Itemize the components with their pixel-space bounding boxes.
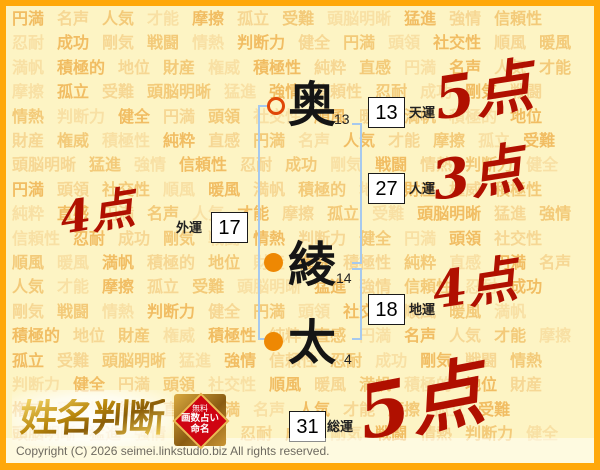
- stroke-count-1: 13: [334, 112, 350, 126]
- jinun-score: 3点: [429, 143, 527, 205]
- jinun-label: 人運: [409, 182, 435, 195]
- gaiun-label: 外運: [176, 221, 202, 234]
- souun-label: 総運: [327, 420, 353, 433]
- site-logo[interactable]: 姓名判断: [12, 390, 172, 446]
- name-char-1: 奥: [288, 82, 336, 130]
- chiun-label: 地運: [409, 303, 435, 316]
- jinun-value-box: 27: [368, 173, 405, 204]
- chiun-value-box: 18: [368, 294, 405, 325]
- badge-line-2: 画数占い: [181, 414, 219, 425]
- chiun-bracket: [352, 268, 362, 340]
- char-marker-dot: [264, 253, 283, 272]
- stroke-count-3: 4: [344, 352, 352, 366]
- site-logo-text: 姓名判断: [19, 399, 166, 437]
- char-marker-ring: [267, 97, 285, 115]
- seimei-handan-result-page: 円満名声人気才能摩擦孤立受難頭脳明晰猛進強情信頼性忍耐成功剛気戦闘情熱判断力健全…: [0, 0, 600, 470]
- tenun-score: 5点: [431, 59, 536, 126]
- tenun-label: 天運: [409, 106, 435, 119]
- name-char-3: 太: [288, 320, 336, 368]
- copyright-text: Copyright (C) 2026 seimei.linkstudio.biz…: [16, 444, 329, 458]
- souun-score: 5点: [353, 359, 489, 448]
- chiun-score: 4点: [429, 256, 520, 314]
- gaiun-bracket: [258, 105, 268, 340]
- free-fortune-badge: 無料 画数占い 命名: [174, 394, 226, 446]
- tenun-value-box: 13: [368, 97, 405, 128]
- jinun-bracket: [352, 123, 362, 264]
- gaiun-value-box: 17: [211, 212, 248, 243]
- stroke-count-2: 14: [336, 271, 352, 285]
- char-marker-dot: [264, 332, 283, 351]
- gaiun-score: 4点: [57, 188, 137, 239]
- name-char-2: 綾: [288, 242, 336, 290]
- badge-text: 無料 画数占い 命名: [174, 398, 226, 442]
- badge-line-3: 命名: [190, 425, 209, 436]
